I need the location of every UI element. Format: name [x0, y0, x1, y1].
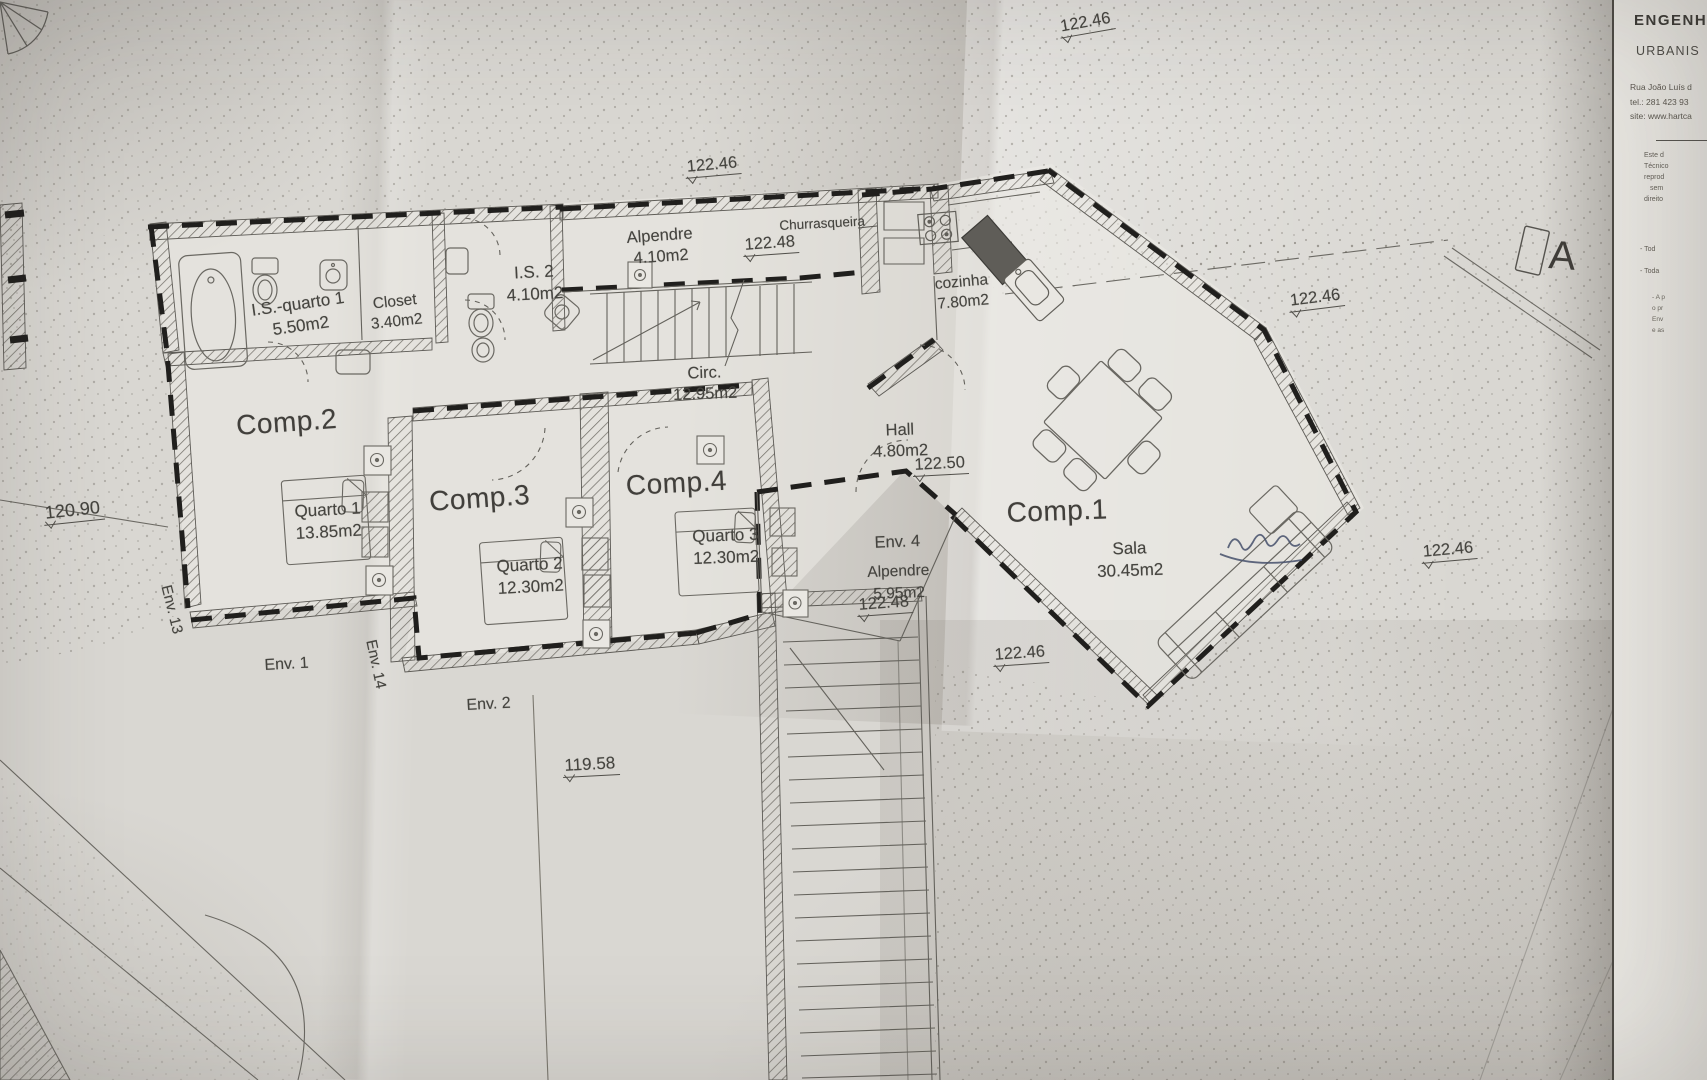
elevation-marker-bottom: 119.58 — [562, 753, 620, 778]
title-block-fineprint: reprod — [1644, 174, 1664, 181]
room-label-comp2: Comp.2 — [235, 401, 338, 444]
elevation-marker-hall: 122.50 — [912, 453, 969, 477]
title-block-tel: tel.: 281 423 93 — [1630, 97, 1689, 107]
title-block-tinynote: - A p — [1652, 294, 1665, 301]
room-label-quarto1: Quarto 113.85m2 — [294, 498, 362, 546]
title-block-site: site: www.hartca — [1630, 111, 1692, 121]
paper-shading-bottommid — [880, 620, 1640, 1080]
envelope-label-env1: Env. 1 — [264, 654, 309, 677]
title-block-fineprint: sem — [1650, 185, 1663, 192]
elevation-marker-env4: 122.48 — [856, 592, 914, 617]
room-label-comp4: Comp.4 — [625, 463, 728, 505]
room-label-circ: Circ.12.95m2 — [672, 362, 738, 407]
elevation-marker-below-env4: 122.46 — [992, 642, 1050, 667]
envelope-label-env2: Env. 2 — [466, 694, 511, 717]
title-block-company: ENGENHA — [1634, 12, 1707, 29]
elevation-marker-left-side: 120.90 — [42, 497, 105, 526]
title-block-note: - Toda — [1640, 268, 1659, 275]
svg-text:A: A — [1547, 233, 1577, 279]
room-label-comp1: Comp.1 — [1006, 491, 1108, 531]
title-block: ENGENHA URBANIS Rua João Luís d tel.: 28… — [1612, 0, 1707, 1080]
room-label-quarto2: Quarto 212.30m2 — [496, 553, 564, 601]
title-block-note: - Tod — [1640, 246, 1655, 253]
title-block-tinynote: o pr — [1652, 305, 1663, 312]
title-block-subtitle: URBANIS — [1636, 44, 1700, 58]
title-block-fineprint: Técnico — [1644, 163, 1669, 170]
elevation-marker-right-side: 122.46 — [1420, 538, 1478, 564]
floor-plan-photo: A I.S.-quarto 15.50m2 Closet3.40m2 I.S. … — [0, 0, 1707, 1080]
title-block-fineprint: Este d — [1644, 152, 1664, 159]
title-block-fineprint: direito — [1644, 196, 1663, 203]
room-label-quarto3: Quarto 312.30m2 — [692, 524, 760, 570]
envelope-label-env13: Env. 13 — [156, 583, 187, 636]
compass-fan-icon — [0, 2, 48, 54]
title-block-address: Rua João Luís d — [1630, 82, 1692, 92]
title-block-rule — [1656, 140, 1707, 141]
room-label-alpendre-top: Alpendre4.10m2 — [626, 223, 695, 270]
elevation-marker-alpendre: 122.48 — [742, 232, 800, 257]
title-block-tinynote: e as — [1652, 327, 1664, 334]
section-cut-symbol: A — [1515, 226, 1577, 279]
title-block-tinynote: Env — [1652, 316, 1663, 323]
room-label-sala: Sala30.45m2 — [1096, 537, 1164, 583]
room-label-cozinha: cozinha7.80m2 — [934, 270, 991, 315]
room-label-closet: Closet3.40m2 — [368, 290, 424, 335]
room-label-is2: I.S. 24.10m2 — [505, 260, 564, 307]
room-label-comp3: Comp.3 — [428, 477, 531, 520]
